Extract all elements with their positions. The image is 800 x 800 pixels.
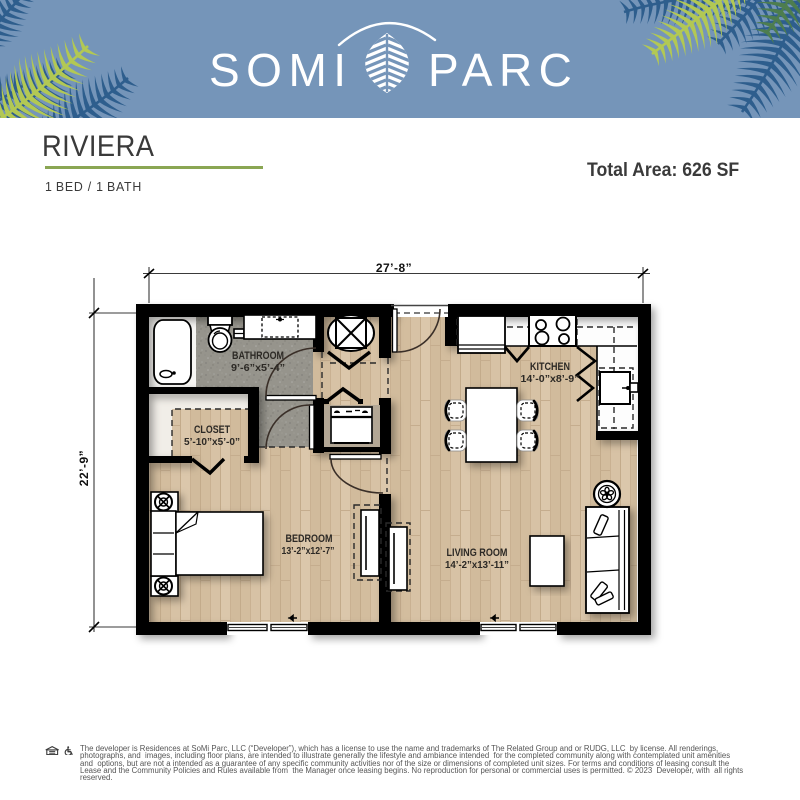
svg-text:14’-2”x13’-11”: 14’-2”x13’-11”: [445, 559, 509, 571]
svg-text:13’-2”x12’-7”: 13’-2”x12’-7”: [282, 545, 335, 557]
svg-text:9’-6”x5’-4”: 9’-6”x5’-4”: [231, 362, 285, 374]
svg-text:27’-8”: 27’-8”: [376, 261, 412, 275]
svg-text:5’-10”x5’-0”: 5’-10”x5’-0”: [184, 436, 240, 448]
svg-text:CLOSET: CLOSET: [194, 424, 230, 436]
svg-text:LIVING ROOM: LIVING ROOM: [447, 547, 508, 559]
svg-text:14’-0”x8’-9”: 14’-0”x8’-9”: [521, 373, 580, 385]
svg-text:KITCHEN: KITCHEN: [530, 361, 570, 373]
svg-text:BEDROOM: BEDROOM: [286, 533, 333, 545]
svg-text:BATHROOM: BATHROOM: [232, 350, 284, 362]
svg-text:22’-9”: 22’-9”: [77, 450, 91, 486]
